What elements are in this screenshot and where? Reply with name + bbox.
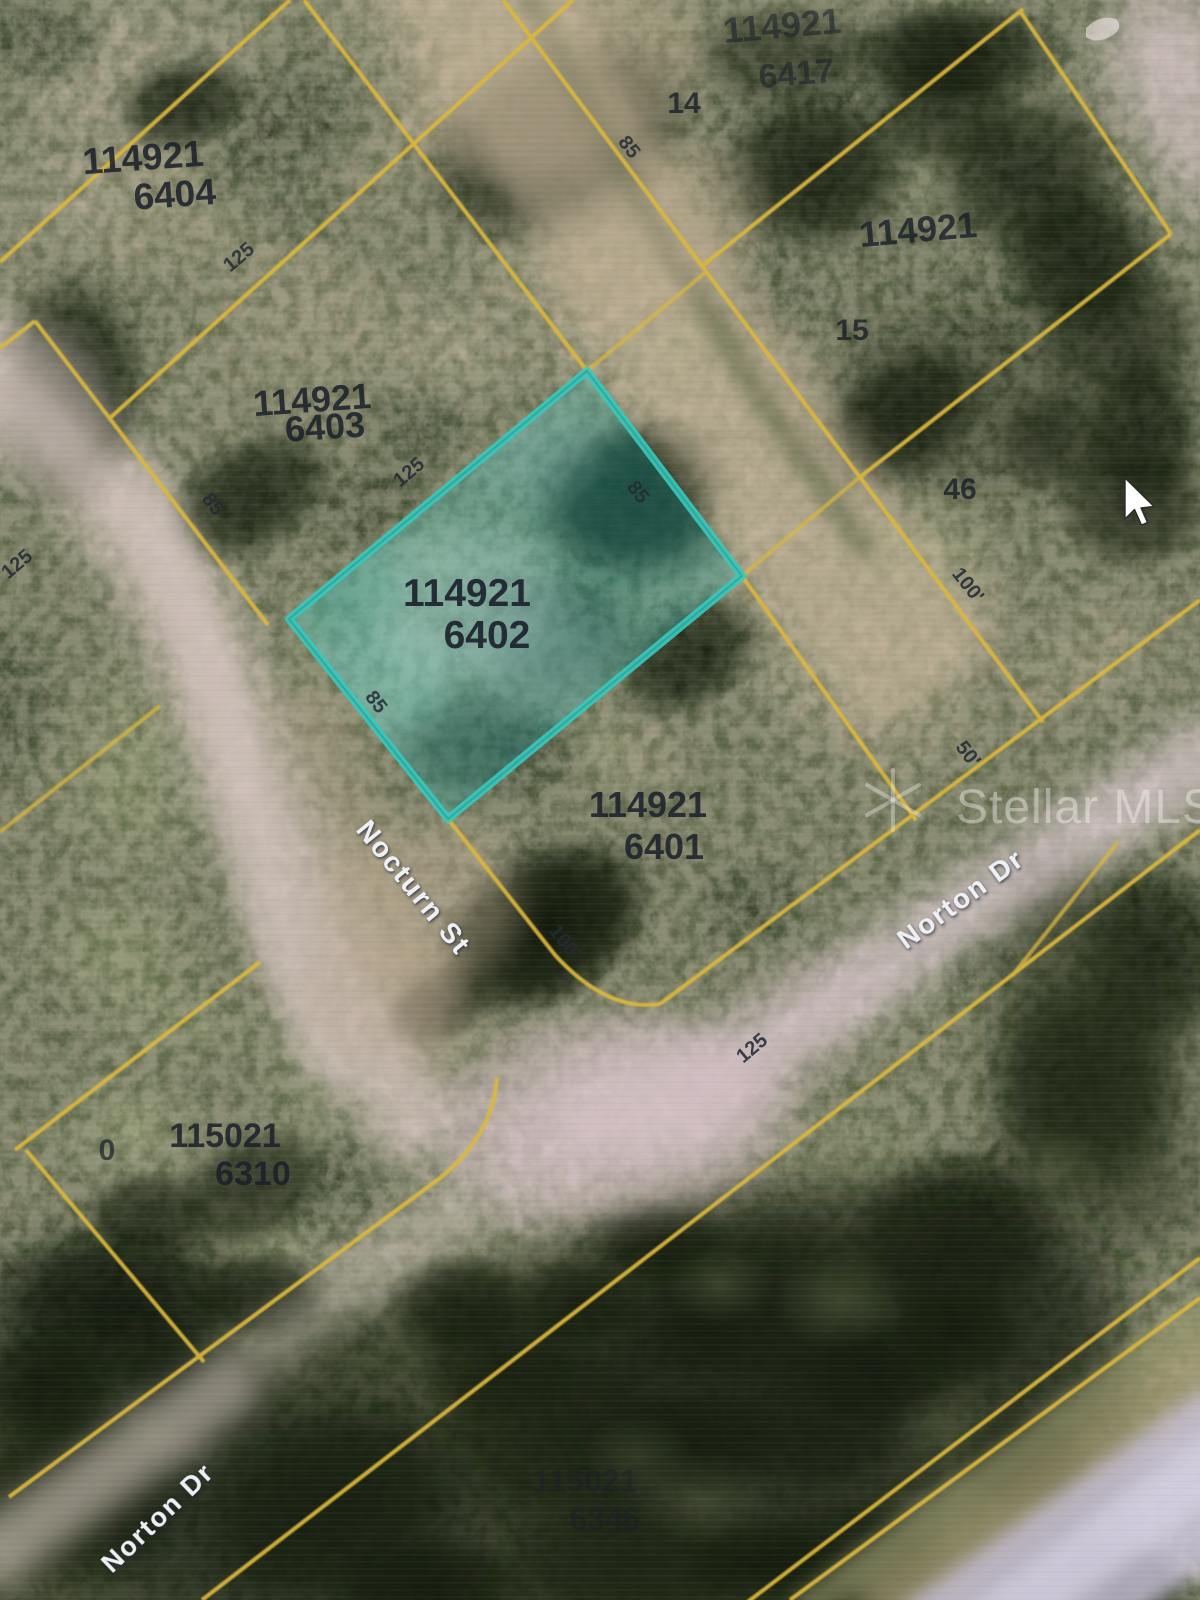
svg-text:6346: 6346 [569,1501,640,1537]
svg-text:Stellar MLS: Stellar MLS [956,781,1200,834]
svg-text:6403: 6403 [284,403,367,449]
svg-text:6402: 6402 [444,614,531,657]
svg-text:114921: 114921 [403,572,531,615]
svg-text:115021: 115021 [169,1117,281,1155]
svg-text:46: 46 [943,473,976,506]
svg-text:115021: 115021 [532,1463,637,1499]
svg-text:6417: 6417 [757,52,836,96]
svg-text:14: 14 [667,87,701,120]
svg-text:0: 0 [99,1134,116,1167]
svg-text:15: 15 [835,314,868,347]
svg-text:6401: 6401 [624,826,704,867]
svg-text:6310: 6310 [215,1155,291,1193]
svg-text:114921: 114921 [589,784,707,825]
svg-text:6404: 6404 [132,171,217,218]
